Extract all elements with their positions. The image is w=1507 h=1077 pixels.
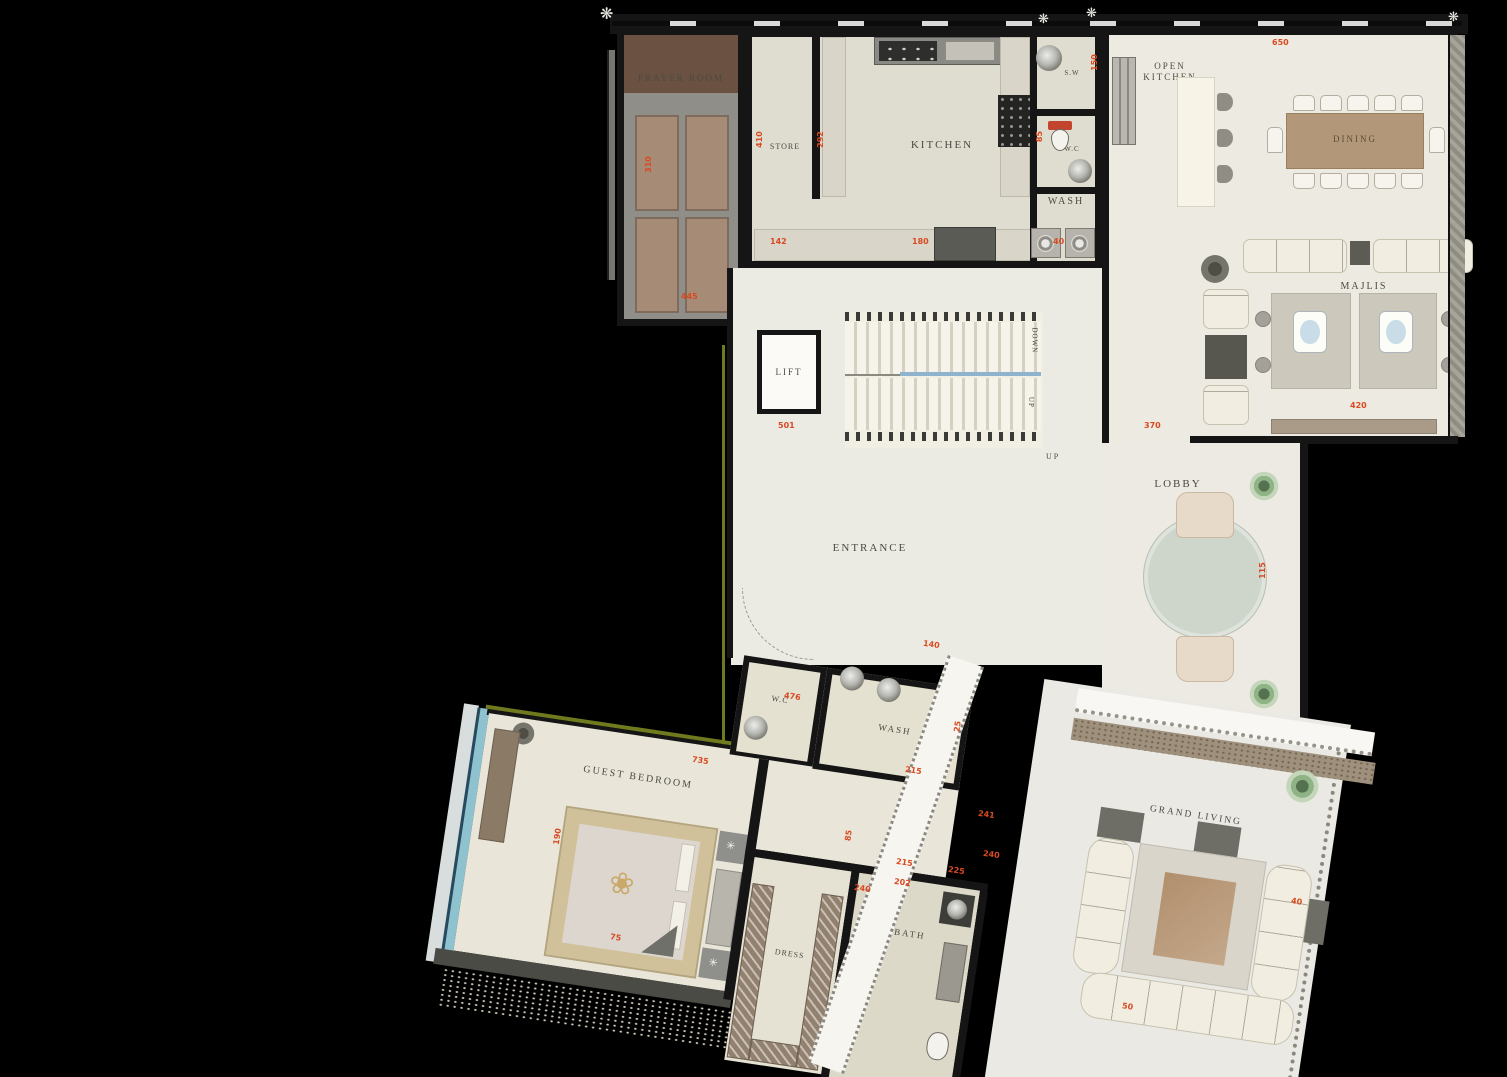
- guest-bed: ❀: [546, 808, 716, 977]
- flower-icon: ❋: [600, 4, 613, 23]
- prayer-carpet: [635, 115, 679, 211]
- dimension-label: 501: [778, 421, 795, 430]
- dimension-label: 310: [644, 156, 653, 173]
- dimension-label: 650: [1272, 38, 1289, 47]
- majlis-armchair: [1203, 385, 1249, 425]
- dining-chair: [1429, 127, 1445, 153]
- kitchen-counter-left: [822, 37, 846, 197]
- bed-pillow: [675, 843, 696, 893]
- lobby-east-wall: [1300, 443, 1308, 739]
- wardrobe-icon: [748, 1039, 799, 1068]
- bar-stool-icon: [1217, 129, 1233, 147]
- dimension-label: 420: [1350, 401, 1367, 410]
- coffee-table-icon: [1293, 311, 1327, 353]
- exterior-stone-band: [1448, 35, 1465, 437]
- dimension-label: 370: [1144, 421, 1161, 430]
- side-table: [1205, 335, 1247, 379]
- coffee-table-icon: [1379, 311, 1413, 353]
- dimension-label: 75: [609, 932, 621, 943]
- plant-icon: [1201, 255, 1229, 283]
- grand-living-wing: GRAND LIVING: [1030, 745, 1417, 1077]
- majlis-stool: [1255, 357, 1271, 373]
- room-prayer: PRAYER ROOM: [617, 28, 745, 326]
- bath-vanity: [936, 942, 968, 1003]
- prayer-carpet: [635, 217, 679, 313]
- majlis-stool: [1255, 311, 1271, 327]
- majlis-sofa: [1243, 239, 1347, 273]
- plant-icon: [1248, 470, 1280, 502]
- dimension-label: 292: [816, 131, 825, 148]
- dining-chair: [1401, 95, 1423, 111]
- store-divider-wall: [812, 37, 820, 199]
- dimension-label: 40: [1053, 237, 1064, 246]
- dimension-label: 410: [755, 131, 764, 148]
- dimension-label: 180: [912, 237, 929, 246]
- room-label-dining: DINING: [1287, 134, 1423, 145]
- room-label-prayer: PRAYER ROOM: [636, 73, 726, 84]
- flower-icon: ❋: [1448, 10, 1459, 25]
- dining-chair: [1320, 173, 1342, 189]
- stair-treads-lower: [845, 378, 1041, 430]
- dimension-label: 85: [1035, 131, 1044, 142]
- lobby-armchair: [1176, 636, 1234, 682]
- dining-chair: [1347, 173, 1369, 189]
- room-label-lobby: LOBBY: [1138, 478, 1218, 492]
- dimension-label: 150: [1090, 54, 1099, 71]
- floor-plan-canvas: ❋ ❋ ❋ ❋ PRAYER ROOM STORE KITCHEN S.W: [0, 0, 1507, 1077]
- kitchen-island: [1177, 77, 1215, 207]
- dimension-label: 50: [1121, 1001, 1133, 1012]
- prayer-window-strip: [607, 50, 615, 280]
- dining-chair: [1401, 173, 1423, 189]
- majlis-armchair: [1203, 289, 1249, 329]
- room-wc-guest: W.C: [729, 655, 827, 766]
- stair-comb-top: [845, 312, 1043, 321]
- dining-chair: [1293, 173, 1315, 189]
- staircase: DOWN UP: [845, 312, 1043, 448]
- room-label-lift: LIFT: [762, 367, 816, 378]
- dining-chair: [1293, 95, 1315, 111]
- stairs-up-exit-label: UP: [1046, 452, 1060, 462]
- wc-wash-divider: [1030, 187, 1095, 194]
- window-dashes: [612, 21, 1462, 26]
- dining-chair: [1374, 95, 1396, 111]
- room-label-kitchen: KITCHEN: [882, 139, 1002, 153]
- basin-icon: [742, 714, 769, 741]
- dimension-label: 25: [952, 720, 963, 732]
- dining-table: DINING: [1286, 113, 1424, 169]
- dining-chair: [1320, 95, 1342, 111]
- bar-stool-icon: [1217, 93, 1233, 111]
- bar-stool-icon: [1217, 165, 1233, 183]
- room-label-entrance: ENTRANCE: [815, 542, 925, 556]
- dimension-label: 142: [770, 237, 787, 246]
- basin-icon: [1036, 45, 1062, 71]
- dimension-label: 40: [1290, 896, 1302, 907]
- dimension-label: 445: [681, 292, 698, 301]
- console-table: [1271, 419, 1437, 434]
- entrance-west-wall: [727, 268, 733, 658]
- stairs-down-label: DOWN: [1030, 327, 1039, 353]
- room-label-majlis: MAJLIS: [1319, 281, 1409, 294]
- stair-comb-bottom: [845, 432, 1043, 441]
- room-lift: LIFT: [757, 330, 821, 414]
- living-center-table: [1121, 843, 1267, 990]
- guest-wing: GUEST BEDROOM ❀ ✳ ✳ DRESS BATH: [443, 712, 1055, 1055]
- kitchen-black-cabinet: [998, 95, 1032, 147]
- room-open-kitchen-block: OPEN KITCHEN DINING MAJLIS: [1102, 28, 1458, 443]
- bed-blanket-fold: [641, 921, 677, 957]
- fridge-icon: [1112, 57, 1136, 145]
- flower-icon: ❋: [1086, 6, 1097, 21]
- stove-icon: [874, 37, 1002, 65]
- room-label-store: STORE: [760, 142, 810, 152]
- boundary-line: [722, 345, 725, 758]
- shower-icon: [939, 891, 975, 927]
- plant-icon: [1248, 678, 1280, 710]
- flower-icon: ❋: [1038, 12, 1049, 27]
- toilet-icon: [925, 1031, 951, 1062]
- dining-chair: [1267, 127, 1283, 153]
- stairs-up-label: UP: [1026, 397, 1035, 408]
- dining-chair: [1374, 173, 1396, 189]
- room-label-wash-top: WASH: [1038, 196, 1094, 209]
- stair-treads-upper: [845, 322, 1041, 374]
- kitchen-sink-unit: [934, 227, 996, 261]
- room-label-sw: S.W: [1052, 69, 1092, 78]
- bed-floral-motif: ❀: [607, 865, 637, 903]
- washing-machine-icon: [1065, 228, 1095, 258]
- prayer-top-band: [624, 35, 738, 93]
- stair-nosing-blue: [900, 372, 1041, 376]
- dimension-label: 115: [1258, 562, 1267, 579]
- prayer-carpet: [685, 115, 729, 211]
- basin-icon: [1068, 159, 1092, 183]
- side-table: [1350, 241, 1370, 265]
- dining-chair: [1347, 95, 1369, 111]
- lobby-armchair: [1176, 492, 1234, 538]
- dimension-label: 85: [843, 829, 854, 841]
- sw-wc-divider: [1030, 109, 1095, 116]
